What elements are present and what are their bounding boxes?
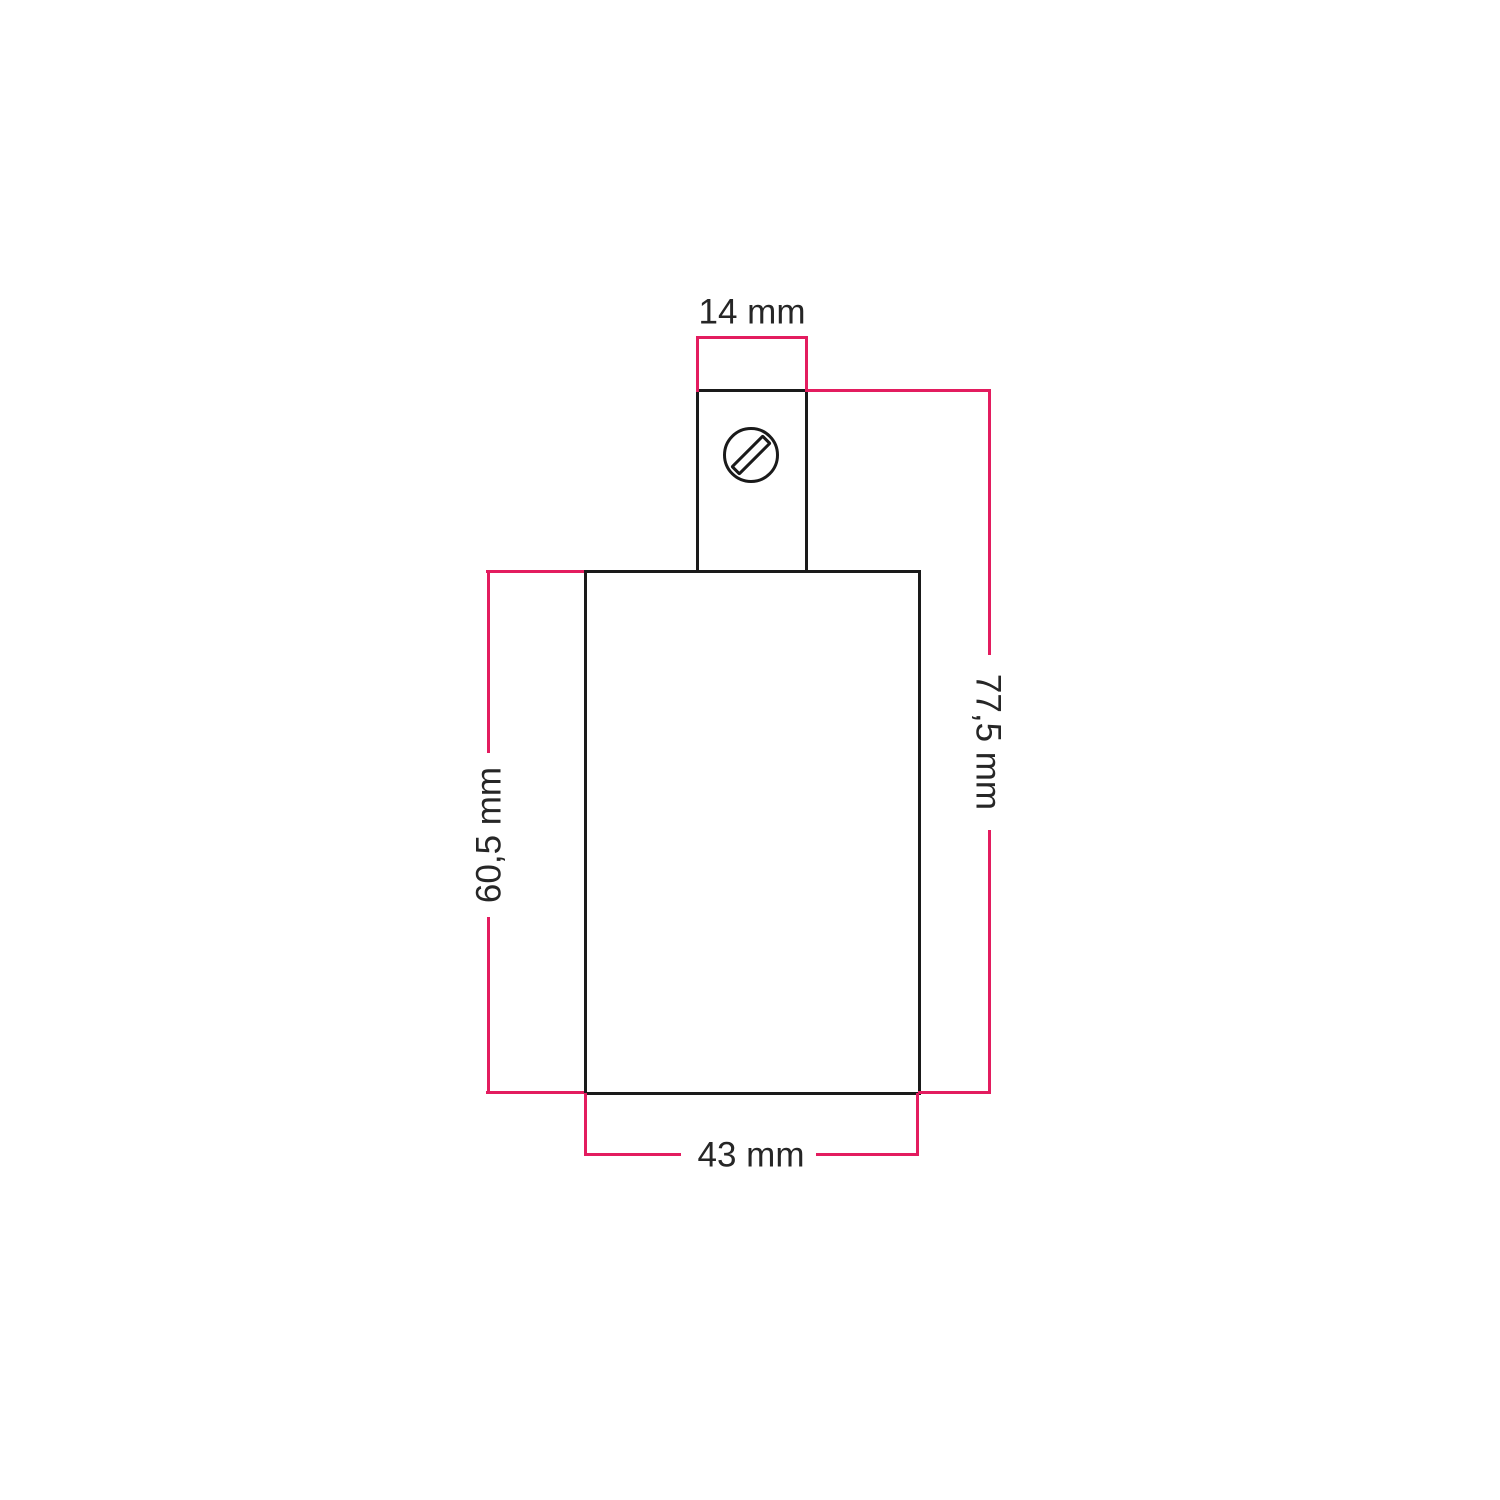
dim-line-total-height-upper (988, 389, 991, 655)
dim-line-body-width-left-segment (584, 1153, 681, 1156)
dim-line-total-height-bottom-tick (918, 1091, 991, 1094)
dimension-diagram: 14 mm 77,5 mm 60,5 mm 43 mm (0, 0, 1500, 1500)
dim-label-top-width: 14 mm (699, 295, 806, 330)
dim-line-top-width (696, 336, 808, 339)
dim-line-body-width-right-leg (916, 1093, 919, 1156)
component-body-outline (584, 570, 921, 1095)
dim-label-total-height: 77,5 mm (971, 674, 1006, 810)
dim-line-body-height-top-tick (486, 570, 584, 573)
dim-line-total-height-top (805, 389, 991, 392)
dim-line-body-height-bottom-tick (486, 1091, 584, 1094)
dim-line-total-height-lower (988, 830, 991, 1093)
dim-label-body-height: 60,5 mm (472, 767, 507, 903)
dim-line-top-width-left-leg (696, 336, 699, 392)
dim-line-body-height-lower (487, 917, 490, 1093)
dim-line-top-width-right-leg (805, 336, 808, 392)
dim-label-body-width: 43 mm (692, 1138, 811, 1173)
dim-line-body-width-right-segment (816, 1153, 919, 1156)
dim-line-body-width-left-leg (584, 1093, 587, 1156)
dim-line-body-height-upper (487, 570, 490, 753)
